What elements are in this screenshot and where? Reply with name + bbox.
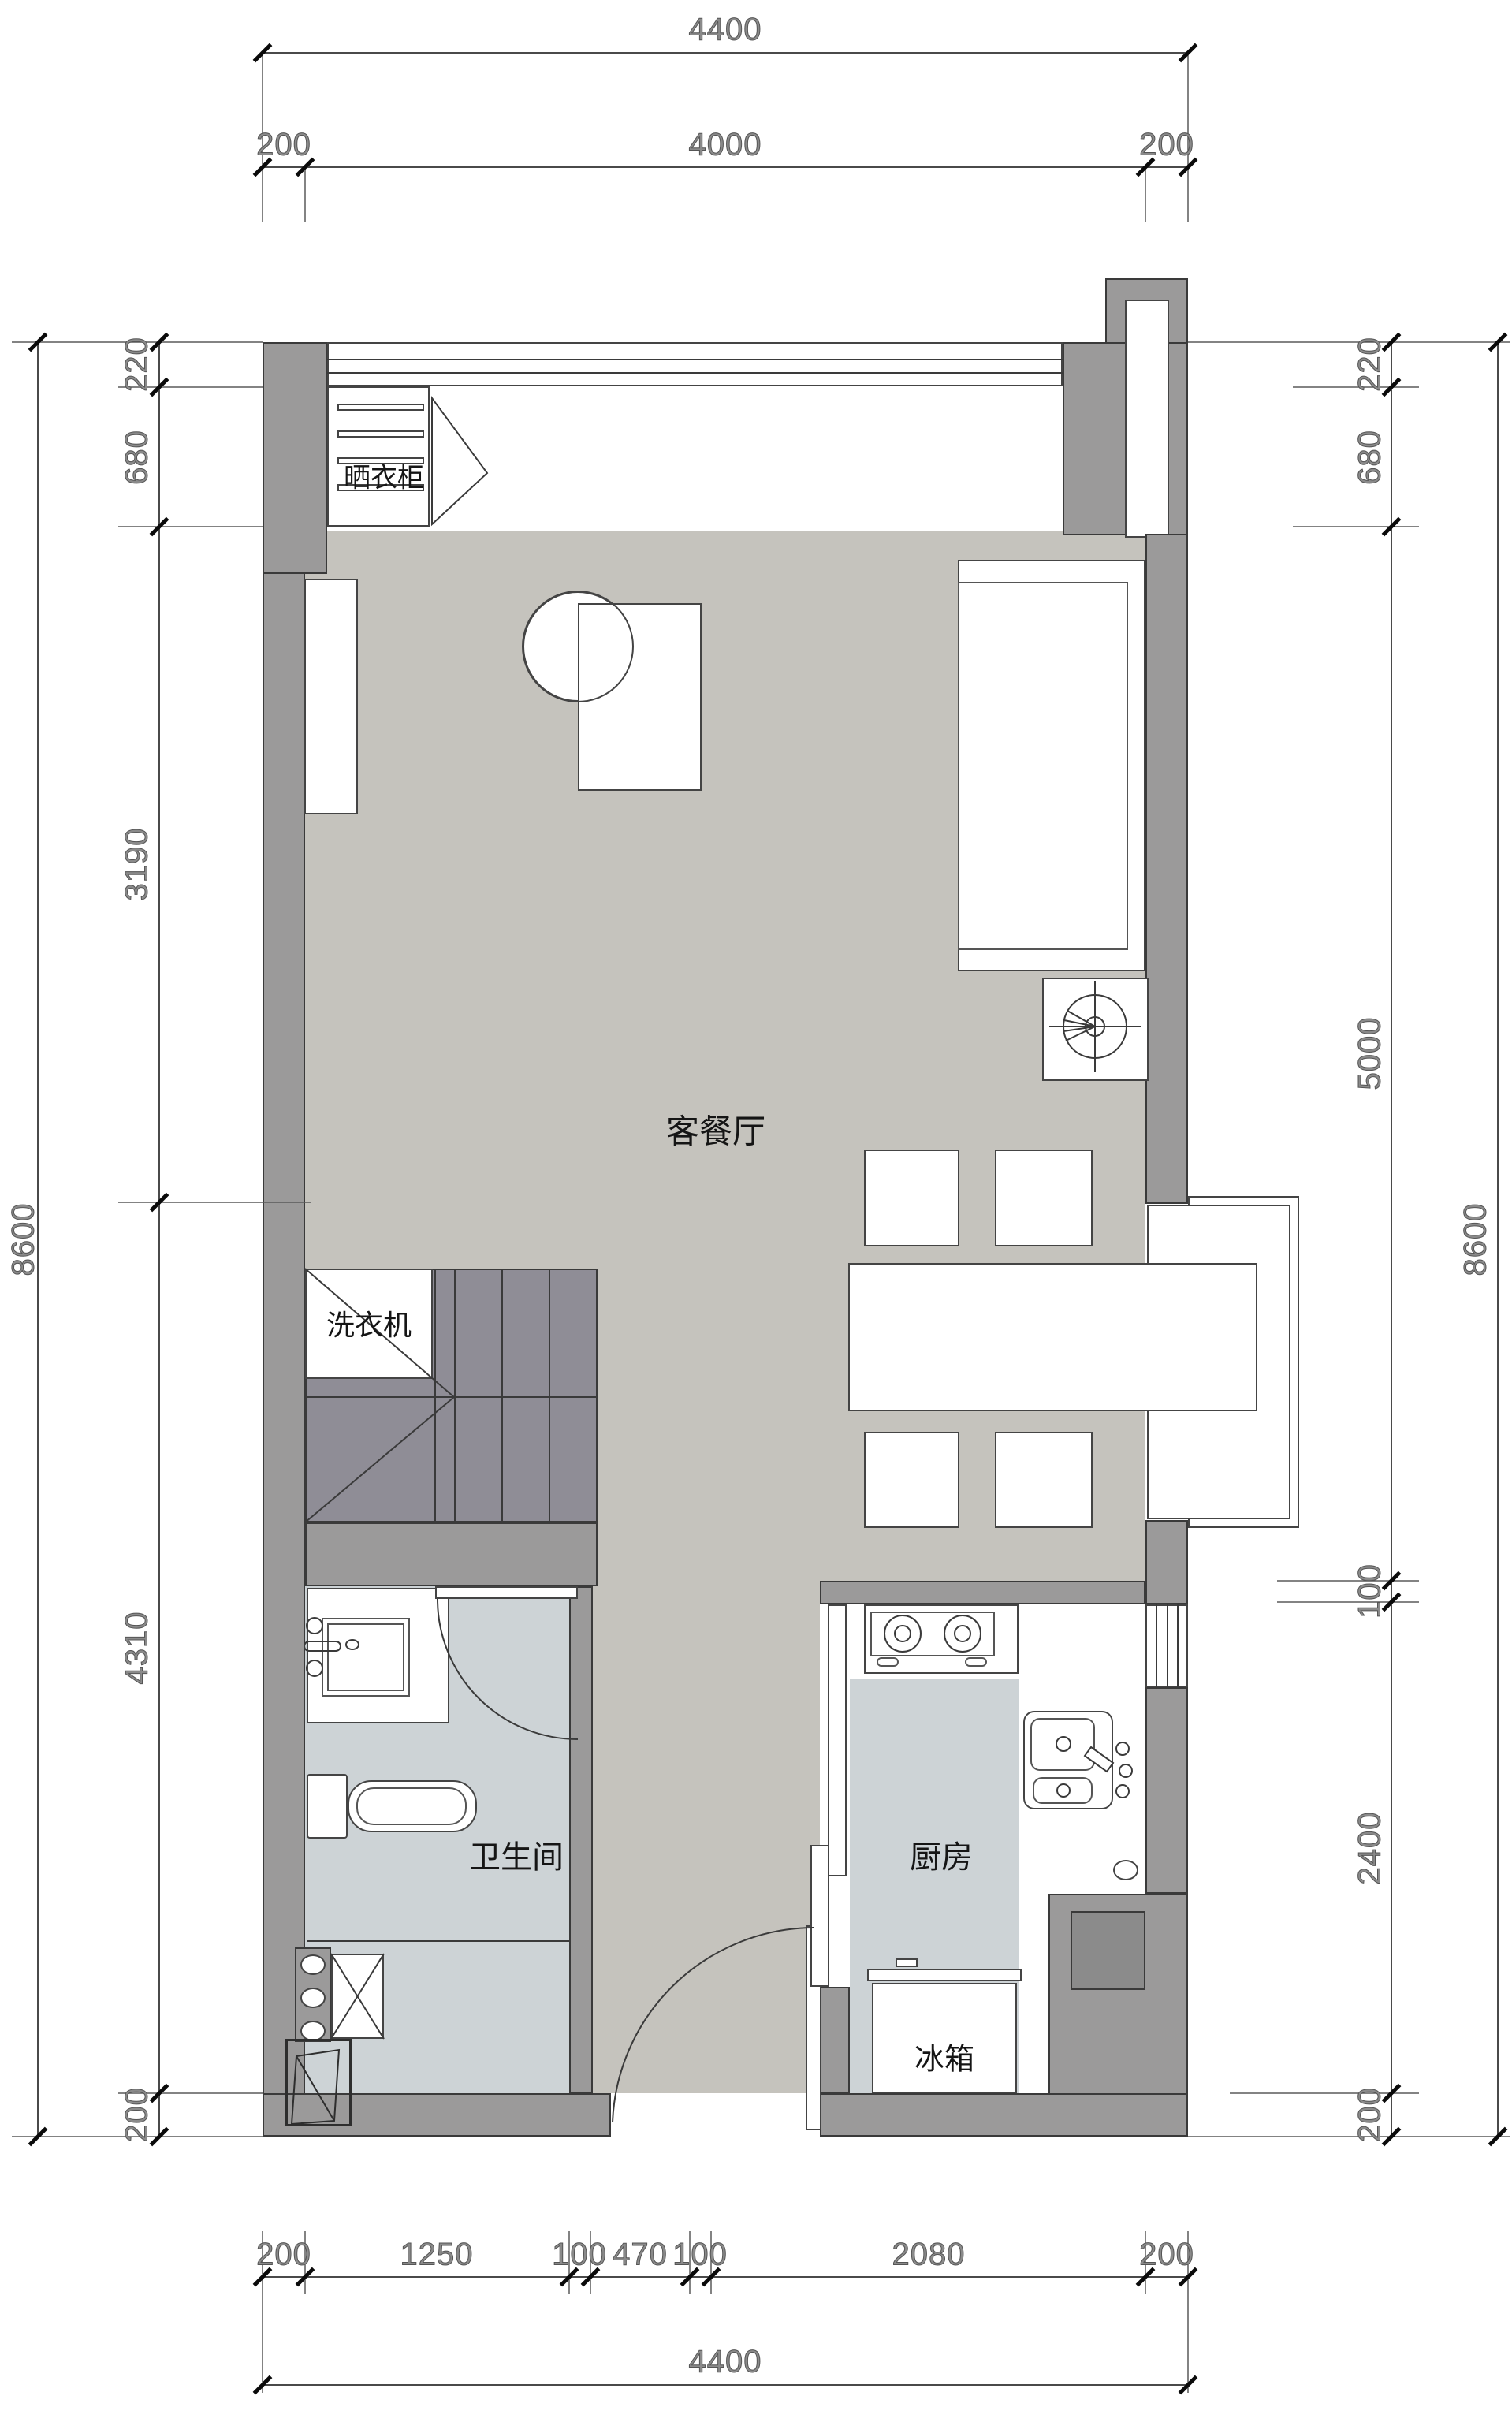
dim-label: 200 — [1353, 2087, 1388, 2142]
dim-label: 4000 — [689, 128, 762, 163]
room-label-kitchen: 厨房 — [910, 1831, 973, 1877]
floor-fan-icon — [1049, 981, 1141, 1072]
room-label-closet: 晒衣柜 — [344, 456, 424, 495]
dim-label: 2400 — [1353, 1812, 1388, 1885]
dim-label: 1250 — [400, 2238, 474, 2273]
dim-label: 100 — [1353, 1563, 1388, 1619]
dim-label: 220 — [1353, 337, 1388, 392]
dim-label: 4310 — [120, 1612, 155, 1685]
round-rug-outline — [523, 591, 633, 702]
dim-label: 200 — [256, 128, 311, 163]
dim-label: 680 — [120, 430, 155, 485]
dim-label: 220 — [120, 337, 155, 392]
extension-lines — [12, 53, 1510, 2393]
dim-label: 100 — [552, 2238, 607, 2273]
dim-label-bottom-total: 4400 — [689, 2345, 762, 2380]
dim-label: 2080 — [892, 2238, 966, 2273]
dim-label: 470 — [613, 2238, 668, 2273]
room-label-fridge: 冰箱 — [914, 2035, 974, 2078]
dim-label-right-outer: 8600 — [1458, 1203, 1494, 1276]
room-label-living: 客餐厅 — [666, 1105, 765, 1153]
dim-label: 5000 — [1353, 1017, 1388, 1090]
dim-label: 100 — [672, 2238, 728, 2273]
room-label-bathroom: 卫生间 — [469, 1831, 564, 1877]
dim-label: 3190 — [120, 828, 155, 901]
dimension-lines — [38, 53, 1498, 2385]
dim-label: 200 — [1139, 2238, 1194, 2273]
dim-label-left-outer: 8600 — [6, 1203, 42, 1276]
cabinet-door-swing — [432, 398, 487, 524]
dim-label: 200 — [256, 2238, 311, 2273]
floor-plan: 4400 200 4000 200 200 1250 100 470 100 2… — [0, 0, 1512, 2422]
dim-label: 200 — [120, 2087, 155, 2142]
dim-label: 680 — [1353, 430, 1388, 485]
linework-layer — [0, 0, 1512, 2422]
room-label-washer: 洗衣机 — [326, 1302, 412, 1343]
dim-label: 200 — [1139, 128, 1194, 163]
dim-label-top-total: 4400 — [689, 13, 762, 48]
